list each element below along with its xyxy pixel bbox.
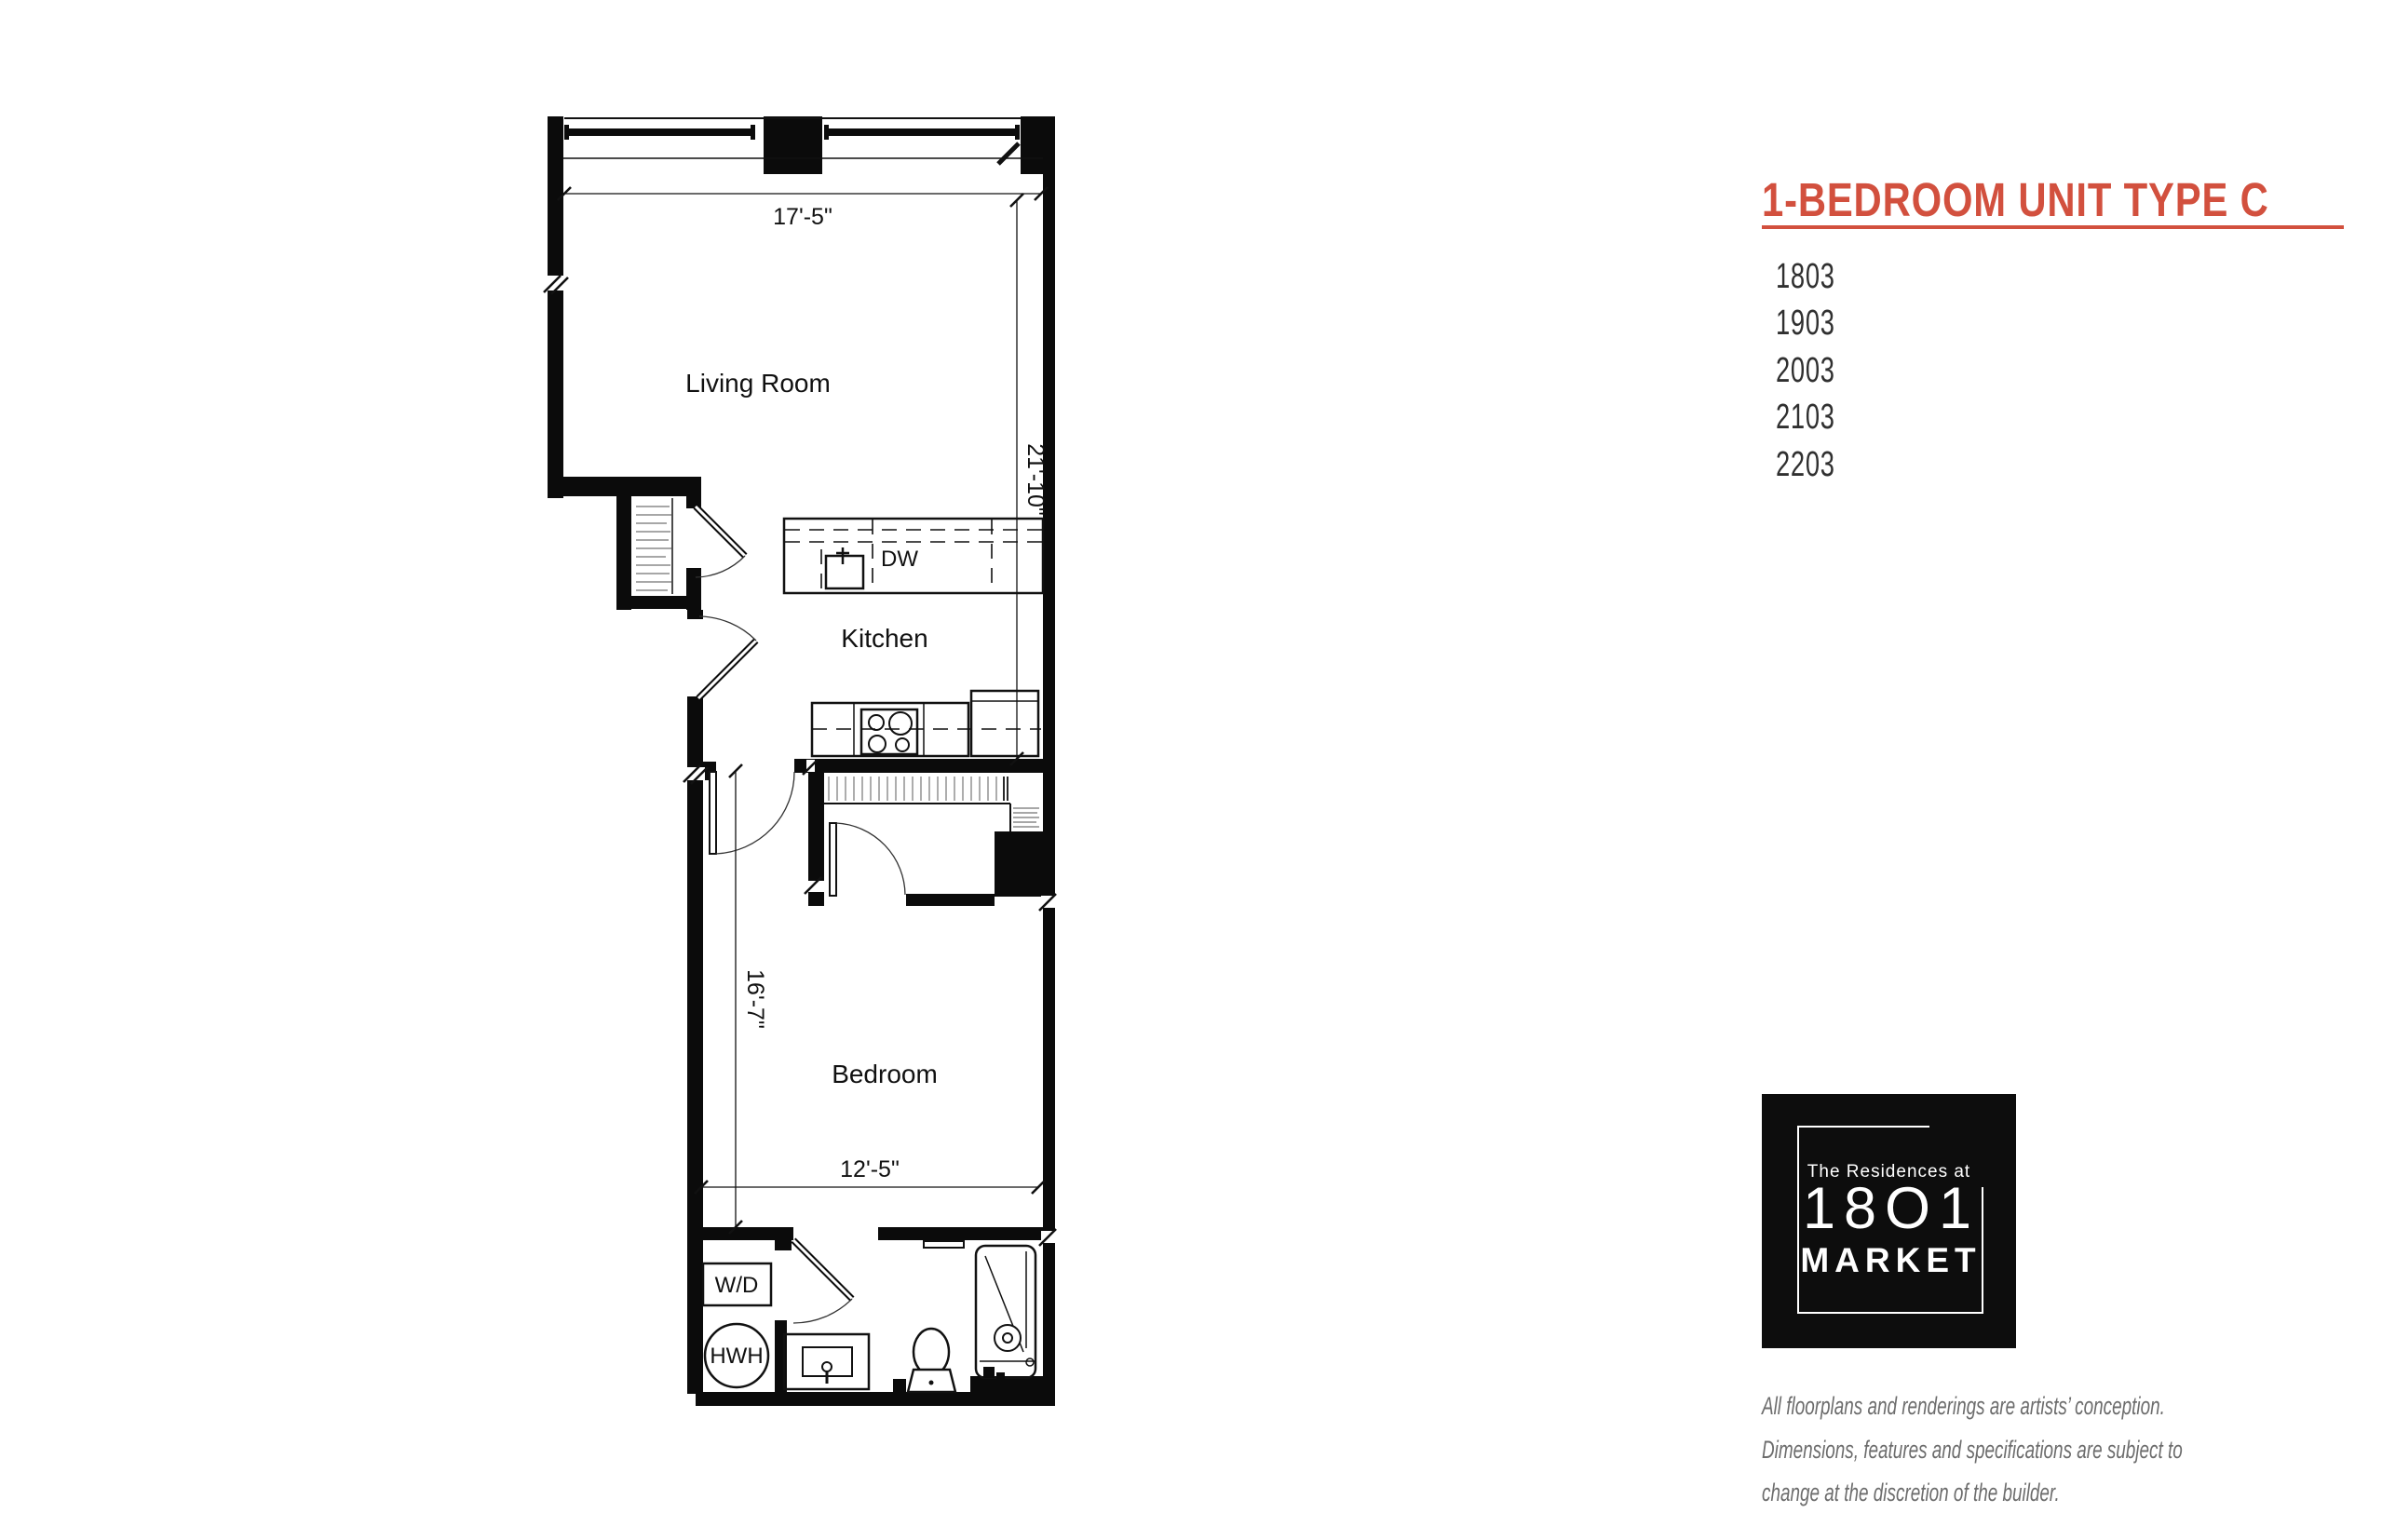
floorplan-sheet: DW <box>0 0 2382 1540</box>
unit-number: 2003 <box>1776 347 1835 394</box>
washer-dryer-label: W/D <box>715 1273 759 1298</box>
unit-number-list: 1803 1903 2003 2103 2203 <box>1776 253 1835 488</box>
bedroom-label: Bedroom <box>832 1060 938 1088</box>
disclaimer-text: All floorplans and renderings are artist… <box>1762 1385 2183 1515</box>
walls <box>548 116 1055 1406</box>
hot-water-heater: HWH <box>705 1324 768 1387</box>
dishwasher-label: DW <box>881 547 918 572</box>
toilet <box>893 1329 955 1392</box>
disclaimer-line: change at the discretion of the builder. <box>1762 1471 2183 1515</box>
bathroom-vanity <box>784 1334 869 1389</box>
logo-number: 18O1 <box>1762 1180 2016 1238</box>
refrigerator <box>971 691 1038 756</box>
page-title: 1-BEDROOM UNIT TYPE C <box>1762 176 2269 223</box>
unit-number: 2103 <box>1776 394 1835 440</box>
towel-bar <box>924 1241 964 1248</box>
dimension-bedroom-length-label: 16'-7" <box>742 969 768 1029</box>
dimension-bedroom-width-label: 12'-5" <box>840 1156 900 1182</box>
kitchen-label: Kitchen <box>841 624 927 653</box>
bathroom-door <box>793 1240 852 1323</box>
wall-break-markers <box>544 143 1057 1246</box>
dimension-bedroom-width: 12'-5" <box>695 1156 1045 1194</box>
bedroom-closet-door <box>830 823 905 896</box>
entry-closet <box>636 498 672 594</box>
bedroom-closet <box>824 777 1039 831</box>
unit-number: 1903 <box>1776 300 1835 346</box>
floorplan-drawing: DW <box>0 0 2382 1540</box>
title-underline <box>1762 225 2344 229</box>
entry-closet-door <box>696 507 745 577</box>
dimension-living-width-label: 17'-5" <box>773 204 832 230</box>
kitchen-counter: DW <box>784 519 1043 593</box>
dimension-living-length: 21'-10" <box>1010 194 1049 765</box>
bedroom-door <box>710 772 794 854</box>
dimension-living-width: 17'-5" <box>558 187 1048 230</box>
living-room-label: Living Room <box>685 369 831 398</box>
logo-wordmark: MARKET <box>1762 1243 2016 1277</box>
hot-water-heater-label: HWH <box>710 1344 763 1369</box>
entry-door <box>698 616 756 698</box>
shower <box>976 1246 1035 1379</box>
unit-number: 1803 <box>1776 253 1835 300</box>
dimension-bedroom-length: 16'-7" <box>729 764 768 1234</box>
logo-frame-top <box>1797 1126 1929 1128</box>
brand-logo: The Residences at 18O1 MARKET <box>1762 1094 2016 1348</box>
dimension-living-length-label: 21'-10" <box>1022 443 1049 516</box>
unit-number: 2203 <box>1776 441 1835 488</box>
disclaimer-line: All floorplans and renderings are artist… <box>1762 1385 2183 1428</box>
kitchen-range <box>812 703 1041 756</box>
washer-dryer: W/D <box>703 1263 771 1305</box>
logo-frame-bottom <box>1797 1312 1983 1314</box>
disclaimer-line: Dimensions, features and specifications … <box>1762 1428 2183 1472</box>
kitchen-sink <box>826 547 863 588</box>
